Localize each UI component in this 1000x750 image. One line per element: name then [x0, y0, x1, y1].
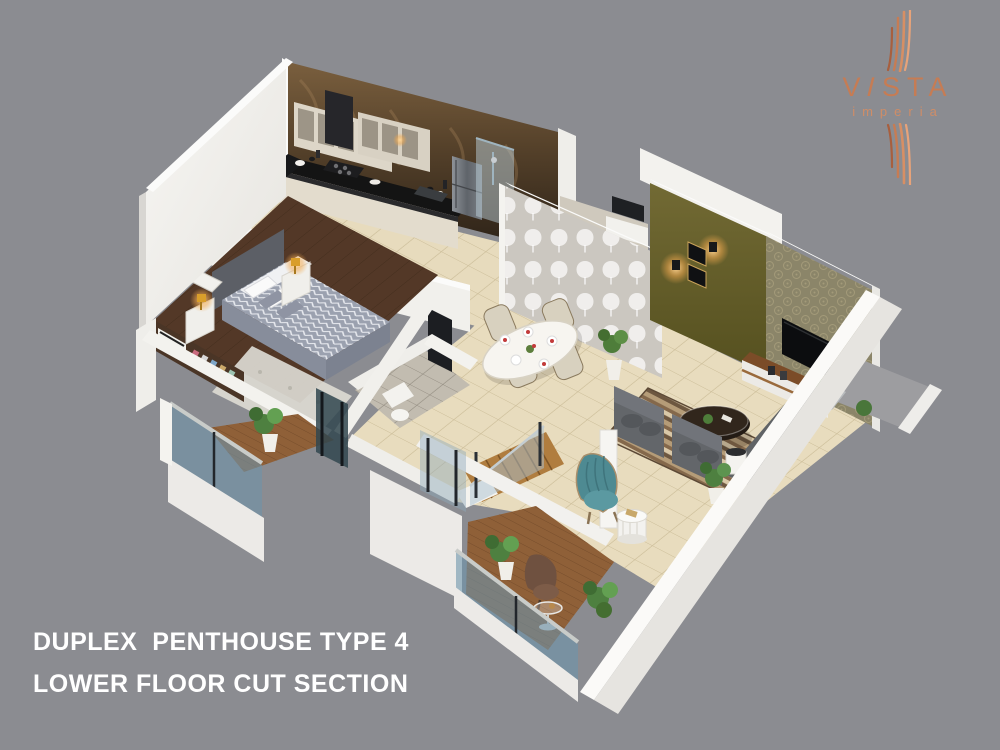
kitchen-light-glow	[393, 133, 407, 147]
wall-sconce	[672, 260, 680, 270]
logo-flourish-bottom-icon	[868, 123, 928, 185]
shower-head	[491, 157, 497, 163]
balcony-plant-right	[583, 581, 618, 618]
wall-end	[499, 183, 505, 310]
round-side-table	[617, 509, 647, 544]
brand-wordmark: VISTA	[818, 74, 978, 101]
caption-title: DUPLEX PENTHOUSE TYPE 4	[33, 630, 409, 655]
floor-plan-render: VISTA imperia DUPLEX PENTHOUSE TYPE 4 LO…	[0, 0, 1000, 750]
table-plant	[703, 414, 713, 424]
console-decor	[780, 371, 787, 380]
console-decor	[768, 366, 775, 375]
bedroom-balcony	[160, 388, 348, 562]
brand-logo: VISTA imperia	[818, 10, 978, 185]
caption-subtitle: LOWER FLOOR CUT SECTION	[33, 672, 409, 697]
chimney-hood	[325, 90, 353, 150]
bath2-toilet	[391, 409, 409, 421]
corner-plant	[856, 400, 872, 416]
brand-subtitle: imperia	[818, 104, 978, 119]
logo-flourish-top-icon	[868, 10, 928, 72]
balcony-side	[160, 398, 172, 466]
wall-edge	[139, 192, 146, 330]
wall-sconce	[709, 242, 717, 252]
caption-block: DUPLEX PENTHOUSE TYPE 4 LOWER FLOOR CUT …	[33, 630, 409, 697]
